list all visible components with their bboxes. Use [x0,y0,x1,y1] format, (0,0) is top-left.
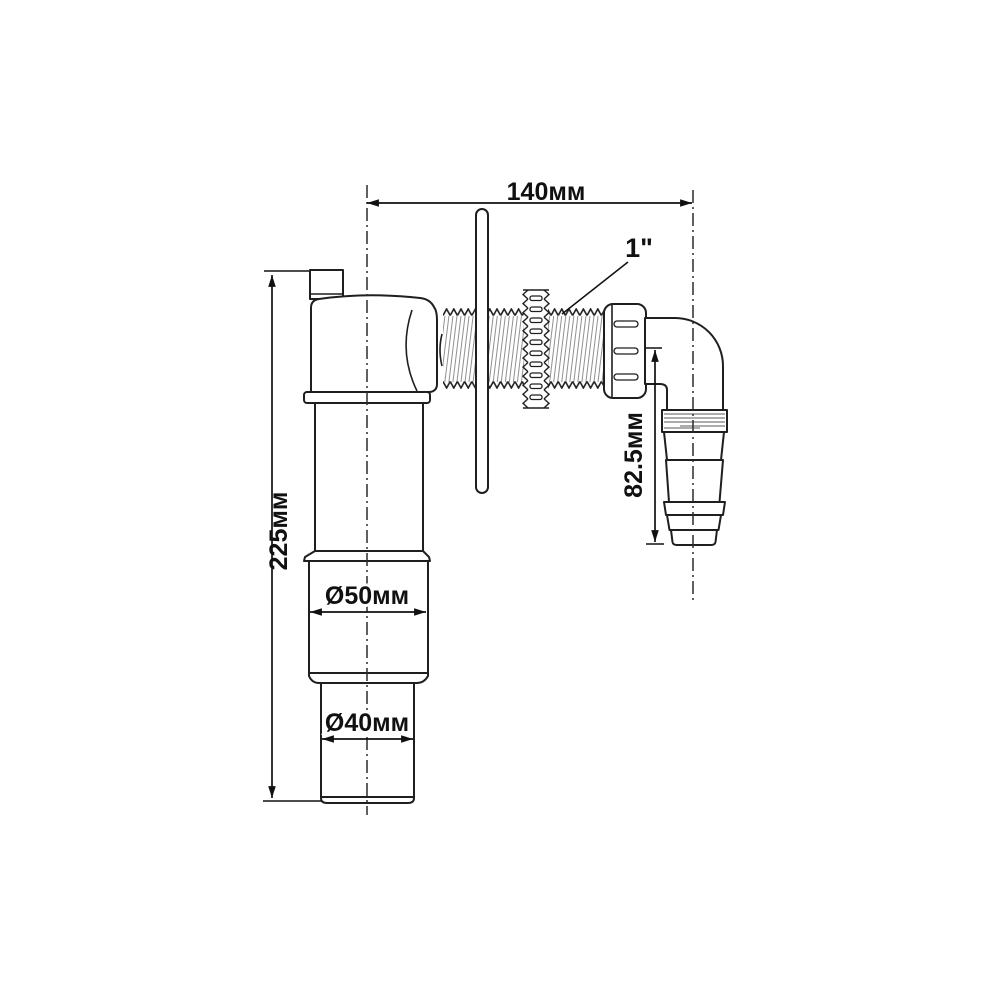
nut-grip-slot [614,374,638,380]
wall-mount-plate [476,209,488,493]
dim-label-thread: 1" [625,233,653,263]
dim-label-d50: Ø50мм [325,582,409,610]
barb-tip [671,530,717,545]
dim-label-225: 225мм [265,492,293,571]
dimension-top-width: 140мм [367,178,692,206]
upper-cylinder [315,403,423,551]
barb-ring-3 [664,502,725,515]
dimension-bottom-diameter: Ø40мм [322,709,413,739]
barb-ring-4 [667,515,721,530]
technical-drawing-canvas: 140мм 1" 225мм 82.5мм Ø50мм Ø40мм [0,0,1000,1000]
dim-label-825: 82.5мм [620,412,648,498]
barb-thread-collar [662,410,727,432]
barb-ring-2 [666,460,723,502]
dim-label-140: 140мм [507,178,586,206]
thread-start-curve [440,334,442,366]
reducer [309,673,428,683]
compression-nut [604,304,646,398]
nut-grip-slot [614,348,638,354]
locknut [522,290,551,408]
outlet-elbow [645,318,723,410]
hose-barb [662,410,727,545]
trap-head [311,295,437,392]
middle-cylinder [309,561,428,673]
dimension-thread-size: 1" [562,233,653,314]
barb-ring-1 [664,432,724,460]
nut-grip-slot [614,321,638,327]
dim-label-d40: Ø40мм [325,709,409,737]
locknut-teeth-right [544,290,551,408]
dimension-middle-diameter: Ø50мм [310,582,426,612]
locknut-teeth-left [522,290,529,408]
trap-dimension-drawing: 140мм 1" 225мм 82.5мм Ø50мм Ø40мм [0,0,1000,1000]
